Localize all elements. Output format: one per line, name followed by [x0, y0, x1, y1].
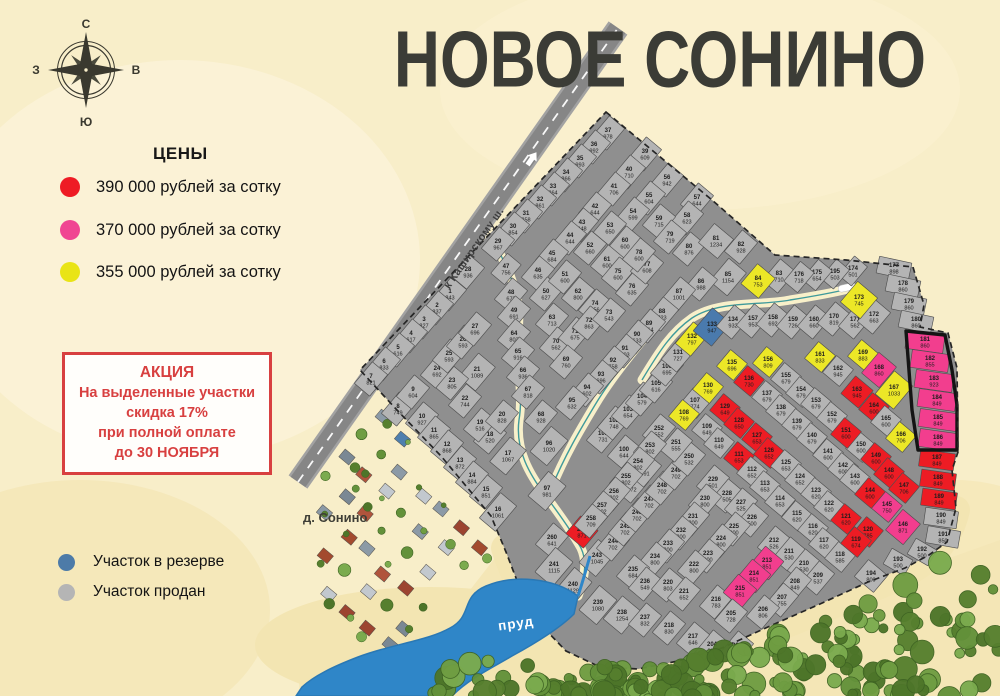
svg-text:148600: 148600: [884, 468, 895, 481]
svg-text:127653: 127653: [752, 433, 763, 446]
svg-text:53650: 53650: [605, 223, 614, 236]
svg-text:55604: 55604: [644, 193, 653, 206]
svg-text:130769: 130769: [703, 383, 714, 396]
svg-text:20828: 20828: [497, 412, 506, 425]
price-dot-pink-icon: [60, 220, 80, 240]
svg-text:54599: 54599: [628, 209, 637, 222]
svg-text:227525: 227525: [736, 500, 747, 513]
svg-text:41706: 41706: [609, 184, 618, 197]
svg-text:206806: 206806: [758, 607, 769, 620]
svg-text:95632: 95632: [567, 398, 576, 411]
svg-text:251555: 251555: [671, 440, 682, 453]
svg-text:68928: 68928: [536, 412, 545, 425]
svg-text:258709: 258709: [586, 516, 597, 529]
svg-text:49691: 49691: [509, 308, 518, 321]
svg-text:84753: 84753: [753, 276, 762, 289]
svg-text:111653: 111653: [734, 452, 744, 465]
svg-text:122620: 122620: [824, 501, 835, 514]
svg-text:2381254: 2381254: [616, 610, 628, 623]
price-label: 370 000 рублей за сотку: [96, 221, 281, 240]
svg-text:113653: 113653: [760, 481, 770, 494]
svg-text:186849: 186849: [933, 435, 944, 448]
svg-text:157953: 157953: [748, 316, 759, 329]
svg-text:125653: 125653: [781, 460, 792, 473]
svg-text:124652: 124652: [795, 474, 806, 487]
svg-text:76635: 76635: [627, 284, 636, 297]
svg-text:260641: 260641: [547, 535, 558, 548]
svg-text:110649: 110649: [714, 438, 724, 451]
svg-text:129649: 129649: [720, 404, 731, 417]
status-item: Участок продан: [58, 583, 205, 601]
plot-map-poster: 3797836992359933486633864328613185830854…: [0, 0, 1000, 696]
svg-text:39609: 39609: [640, 149, 649, 162]
price-item: 355 000 рублей за сотку: [60, 262, 281, 282]
svg-text:75600: 75600: [613, 269, 622, 282]
svg-text:115620: 115620: [792, 511, 802, 524]
svg-text:234800: 234800: [650, 554, 661, 567]
svg-text:165600: 165600: [881, 416, 892, 429]
svg-text:187849: 187849: [932, 455, 943, 468]
svg-text:172663: 172663: [869, 312, 880, 325]
svg-text:30854: 30854: [508, 224, 517, 237]
svg-text:18520: 18520: [485, 432, 494, 445]
svg-text:100644: 100644: [619, 447, 630, 460]
svg-text:145750: 145750: [882, 502, 893, 515]
svg-text:237832: 237832: [640, 615, 651, 628]
svg-text:183923: 183923: [929, 376, 940, 389]
svg-text:217646: 217646: [688, 634, 699, 647]
svg-text:121620: 121620: [841, 514, 852, 527]
svg-text:62800: 62800: [573, 289, 582, 302]
svg-text:133947: 133947: [707, 322, 718, 335]
svg-text:166706: 166706: [896, 432, 907, 445]
promo-line: при полной оплате: [67, 423, 267, 443]
svg-text:181860: 181860: [920, 337, 931, 350]
svg-text:78600: 78600: [634, 250, 643, 263]
svg-text:176718: 176718: [794, 272, 805, 285]
svg-text:24692: 24692: [432, 366, 441, 379]
svg-text:14884: 14884: [467, 473, 476, 486]
compass-south-label: Ю: [80, 115, 92, 129]
svg-text:248702: 248702: [657, 483, 668, 496]
svg-text:205728: 205728: [726, 611, 737, 624]
svg-text:44644: 44644: [565, 233, 574, 246]
village-label: д. Сонино: [303, 510, 367, 525]
svg-text:162945: 162945: [833, 366, 844, 379]
svg-text:143600: 143600: [850, 474, 861, 487]
promo-line: до 30 НОЯБРЯ: [67, 443, 267, 463]
prices-heading: ЦЕНЫ: [153, 144, 208, 164]
svg-text:137679: 137679: [762, 391, 773, 404]
svg-text:146871: 146871: [898, 522, 909, 535]
svg-text:79719: 79719: [665, 232, 674, 245]
svg-text:12868: 12868: [442, 442, 451, 455]
svg-text:144600: 144600: [865, 488, 876, 501]
svg-text:23805: 23805: [447, 378, 456, 391]
svg-text:51600: 51600: [560, 272, 569, 285]
svg-text:80876: 80876: [684, 244, 693, 257]
svg-text:22744: 22744: [460, 396, 469, 409]
svg-text:13872: 13872: [455, 458, 464, 471]
promo-box: АКЦИЯ На выделенные участки скидка 17% п…: [62, 352, 272, 475]
svg-text:179860: 179860: [904, 299, 915, 312]
svg-text:2391080: 2391080: [592, 600, 604, 613]
price-item: 390 000 рублей за сотку: [60, 177, 281, 197]
svg-text:190849: 190849: [936, 513, 947, 526]
price-item: 370 000 рублей за сотку: [60, 220, 281, 240]
svg-text:119674: 119674: [851, 537, 861, 550]
compass-east-label: В: [132, 63, 141, 77]
svg-text:86988: 86988: [696, 279, 705, 292]
svg-text:170819: 170819: [829, 314, 840, 327]
svg-text:108769: 108769: [679, 410, 690, 423]
svg-text:174501: 174501: [848, 266, 859, 279]
svg-text:222800: 222800: [689, 562, 700, 575]
svg-text:136730: 136730: [744, 376, 755, 389]
promo-line: скидка 17%: [67, 403, 267, 423]
svg-text:117620: 117620: [819, 538, 829, 551]
svg-text:189849: 189849: [934, 494, 945, 507]
svg-text:112652: 112652: [747, 467, 757, 480]
svg-text:182855: 182855: [925, 356, 936, 369]
svg-text:46635: 46635: [533, 268, 542, 281]
svg-text:185849: 185849: [933, 415, 944, 428]
svg-text:114653: 114653: [775, 496, 785, 509]
svg-text:140679: 140679: [807, 433, 818, 446]
svg-text:155679: 155679: [781, 373, 792, 386]
svg-text:1671033: 1671033: [888, 385, 900, 398]
svg-text:60600: 60600: [620, 238, 629, 251]
svg-text:221652: 221652: [679, 589, 690, 602]
svg-text:135696: 135696: [727, 360, 738, 373]
price-label: 390 000 рублей за сотку: [96, 178, 281, 197]
svg-text:188849: 188849: [933, 475, 944, 488]
svg-text:40710: 40710: [624, 167, 633, 180]
status-item: Участок в резерве: [58, 553, 224, 571]
svg-text:25593: 25593: [444, 351, 453, 364]
svg-text:58623: 58623: [682, 213, 691, 226]
svg-text:236549: 236549: [640, 579, 651, 592]
svg-text:50627: 50627: [541, 289, 550, 302]
svg-text:29967: 29967: [493, 239, 502, 252]
page-title: НОВОЕ СОНИНО: [374, 14, 945, 105]
svg-text:59715: 59715: [654, 216, 663, 229]
svg-text:109649: 109649: [702, 424, 713, 437]
svg-text:163945: 163945: [852, 387, 863, 400]
svg-text:67818: 67818: [523, 387, 532, 400]
svg-text:173745: 173745: [854, 295, 865, 308]
status-dot-reserved-icon: [58, 554, 75, 571]
svg-text:82928: 82928: [736, 242, 745, 255]
svg-text:52660: 52660: [585, 243, 594, 256]
status-label: Участок в резерве: [93, 553, 224, 571]
svg-text:178860: 178860: [898, 281, 909, 294]
svg-text:123620: 123620: [811, 488, 822, 501]
svg-text:154679: 154679: [796, 387, 807, 400]
plots-layer: 3797836992359933486633864328613185830854…: [354, 116, 960, 665]
svg-text:150600: 150600: [856, 442, 867, 455]
svg-text:152679: 152679: [827, 412, 838, 425]
svg-text:161833: 161833: [815, 352, 826, 365]
svg-text:147706: 147706: [899, 483, 910, 496]
svg-text:69760: 69760: [561, 357, 570, 370]
svg-text:193500: 193500: [893, 557, 904, 570]
compass-north-label: С: [82, 17, 91, 31]
status-dot-sold-icon: [58, 584, 75, 601]
svg-text:218830: 218830: [664, 623, 675, 636]
svg-text:212526: 212526: [769, 538, 780, 551]
svg-text:97981: 97981: [542, 486, 551, 499]
svg-text:168860: 168860: [874, 365, 885, 378]
svg-text:118585: 118585: [835, 552, 845, 565]
svg-text:169883: 169883: [858, 350, 869, 363]
svg-text:230800: 230800: [700, 496, 711, 509]
price-dot-red-icon: [60, 177, 80, 197]
svg-text:220803: 220803: [663, 580, 674, 593]
svg-text:159726: 159726: [788, 317, 799, 330]
svg-text:10927: 10927: [417, 414, 426, 427]
svg-text:72863: 72863: [584, 318, 593, 331]
svg-text:15851: 15851: [481, 487, 490, 500]
svg-text:128650: 128650: [734, 418, 745, 431]
svg-text:138679: 138679: [776, 405, 787, 418]
svg-text:149600: 149600: [871, 453, 882, 466]
svg-text:131727: 131727: [673, 350, 684, 363]
svg-text:83710: 83710: [774, 271, 783, 284]
svg-text:73543: 73543: [604, 310, 613, 323]
svg-text:153679: 153679: [811, 398, 822, 411]
svg-text:250532: 250532: [684, 454, 695, 467]
status-label: Участок продан: [93, 583, 205, 601]
promo-line: АКЦИЯ: [67, 363, 267, 383]
svg-text:151600: 151600: [841, 428, 852, 441]
svg-text:126652: 126652: [764, 448, 775, 461]
svg-text:27696: 27696: [470, 324, 479, 337]
svg-text:63713: 63713: [547, 315, 556, 328]
price-dot-yellow-icon: [60, 262, 80, 282]
svg-text:156809: 156809: [763, 357, 774, 370]
svg-text:105616: 105616: [651, 381, 662, 394]
promo-line: На выделенные участки: [67, 383, 267, 403]
svg-text:45684: 45684: [547, 251, 556, 264]
svg-text:215851: 215851: [735, 586, 746, 599]
svg-text:216783: 216783: [711, 597, 722, 610]
svg-text:207755: 207755: [777, 595, 788, 608]
price-label: 355 000 рублей за сотку: [96, 263, 281, 282]
svg-text:19516: 19516: [475, 420, 484, 433]
compass-west-label: З: [32, 63, 40, 77]
svg-text:141600: 141600: [823, 449, 834, 462]
svg-text:139679: 139679: [792, 419, 803, 432]
svg-text:2431045: 2431045: [591, 553, 603, 566]
svg-text:2411115: 2411115: [548, 562, 560, 575]
svg-text:132797: 132797: [687, 334, 698, 347]
svg-text:209537: 209537: [813, 573, 824, 586]
svg-text:70562: 70562: [551, 339, 560, 352]
svg-text:214851: 214851: [749, 571, 760, 584]
svg-text:56942: 56942: [662, 175, 671, 188]
svg-text:184849: 184849: [932, 395, 943, 408]
svg-text:134932: 134932: [728, 317, 739, 330]
svg-text:47756: 47756: [501, 264, 510, 277]
svg-text:211530: 211530: [784, 549, 794, 562]
